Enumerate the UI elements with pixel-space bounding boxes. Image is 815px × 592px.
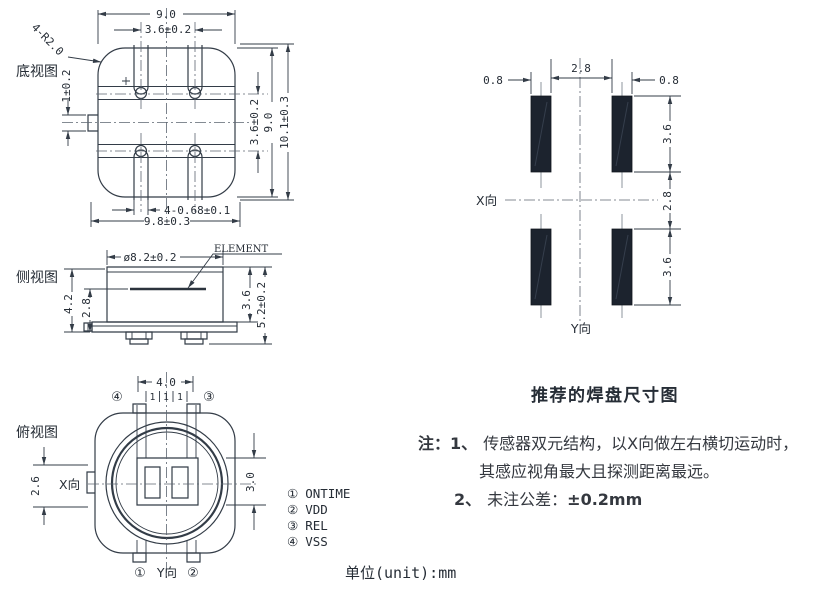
pin-list-item: ④VSS	[287, 534, 350, 550]
pad-y-axis-label: Y向	[570, 321, 591, 336]
note-2-tolerance-value: ±0.2mm	[567, 490, 642, 509]
dim-overall-height: 10.1±0.3	[278, 96, 291, 149]
pin-list: ①ONTIME ②VDD ③REL ④VSS	[287, 486, 350, 550]
notes-label: 注：	[418, 434, 450, 453]
bottom-view-dimensions: 9.0 3.6±0.2 4-R2.0 1±0.2 3.6±0.2 9.0 10.…	[29, 8, 294, 228]
side-view-dimensions: ø8.2±0.2 ELEMENT 4.2 2.8 3.6 5.2±0.2	[62, 244, 282, 344]
dim-corner-radius: 4-R2.0	[29, 21, 66, 58]
dim-pad-width-left: 0.8	[483, 74, 503, 87]
note-1-text: 传感器双元结构，以X向做左右横切运动时，	[483, 434, 798, 453]
dim-slot-pitch: 3.6±0.2	[145, 23, 191, 36]
dim-can-height: 4.2	[62, 294, 75, 314]
pin-2-marker: ②	[187, 566, 199, 581]
note-1-text-continued: 其感应视角最大且探测距离最远。	[479, 462, 719, 481]
dim-overall-width: 9.8±0.3	[144, 215, 190, 228]
bottom-view-label: 底视图	[16, 64, 58, 80]
dim-total-height: 5.2±0.2	[255, 282, 268, 328]
pin-4-name: VSS	[305, 534, 328, 549]
pin-3-marker: ③	[203, 390, 215, 405]
dim-pin-pitch-2: 1	[163, 392, 169, 403]
top-view: 俯视图 4.0 1 1	[16, 372, 266, 581]
dim-pad-height-bottom: 3.6	[661, 257, 674, 277]
y-axis-label: Y向	[156, 565, 177, 580]
side-view-label: 侧视图	[16, 270, 58, 286]
pin-1-marker: ①	[134, 566, 146, 581]
side-view: 侧视图 ø8.2±0.2 ELEMENT	[16, 244, 282, 344]
dim-pin-pitch-3: 1	[177, 392, 183, 403]
dim-lens-diameter: ø8.2±0.2	[124, 251, 177, 264]
dim-can-side: 3.6	[240, 290, 253, 310]
top-view-dimensions: 4.0 1 1 1 2.6 X向 3.0 ④ ③ ① ② Y向	[29, 376, 266, 581]
unit-label: 单位(unit):mm	[345, 562, 456, 583]
pin-1-number: ①	[287, 486, 305, 501]
note-line-3: 2、未注公差：±0.2mm	[418, 486, 798, 514]
bottom-view-body	[62, 8, 268, 218]
note-2-number: 2、	[454, 490, 487, 509]
pin-list-item: ③REL	[287, 518, 350, 534]
dim-pad-height-top: 3.6	[661, 124, 674, 144]
x-axis-label: X向	[59, 477, 80, 492]
pad-layout: X向 Y向 0.8 2.8 0.8 3.6 2.8 3.6	[476, 58, 681, 336]
dim-tab: 1±0.2	[60, 69, 73, 102]
dim-pad-row-gap: 2.8	[661, 191, 674, 211]
pad-x-axis-label: X向	[476, 193, 497, 208]
dim-element-height: 2.8	[80, 298, 93, 318]
dim-window-width: 2.6	[29, 476, 42, 496]
pad-layout-dimensions: X向 Y向 0.8 2.8 0.8 3.6 2.8 3.6	[476, 59, 681, 336]
dim-element-window: 3.0	[244, 472, 257, 492]
pin-2-name: VDD	[305, 502, 328, 517]
note-2-text: 未注公差：	[487, 490, 567, 509]
datasheet-page: 底视图 9.0	[0, 0, 815, 592]
dim-pad-gap: 2.8	[571, 62, 591, 75]
top-view-label: 俯视图	[16, 425, 58, 441]
pin-3-name: REL	[305, 518, 328, 533]
bottom-view: 底视图 9.0	[16, 8, 294, 228]
note-1-number: 1、	[450, 434, 483, 453]
pin-4-marker: ④	[111, 390, 123, 405]
pad-layout-body	[505, 58, 658, 322]
pin-list-item: ①ONTIME	[287, 486, 350, 502]
pin-list-item: ②VDD	[287, 502, 350, 518]
notes-block: 注：1、传感器双元结构，以X向做左右横切运动时， 其感应视角最大且探测距离最远。…	[418, 430, 798, 514]
pad-layout-title: 推荐的焊盘尺寸图	[531, 381, 679, 406]
dim-pitch-vertical: 3.6±0.2	[248, 99, 261, 145]
dim-body-width: 9.0	[156, 8, 176, 21]
element-callout-label: ELEMENT	[214, 244, 269, 255]
side-view-body	[84, 267, 237, 344]
dim-body-height: 9.0	[262, 113, 275, 133]
note-line-2: 其感应视角最大且探测距离最远。	[418, 458, 798, 486]
dim-pin-pitch-1: 1	[150, 392, 156, 403]
pin-3-number: ③	[287, 518, 305, 533]
pin-2-number: ②	[287, 502, 305, 517]
note-line-1: 注：1、传感器双元结构，以X向做左右横切运动时，	[418, 430, 798, 458]
pin-4-number: ④	[287, 534, 305, 549]
dim-pin-span: 4.0	[156, 376, 176, 389]
pin-1-name: ONTIME	[305, 486, 350, 501]
dim-pad-width-right: 0.8	[659, 74, 679, 87]
